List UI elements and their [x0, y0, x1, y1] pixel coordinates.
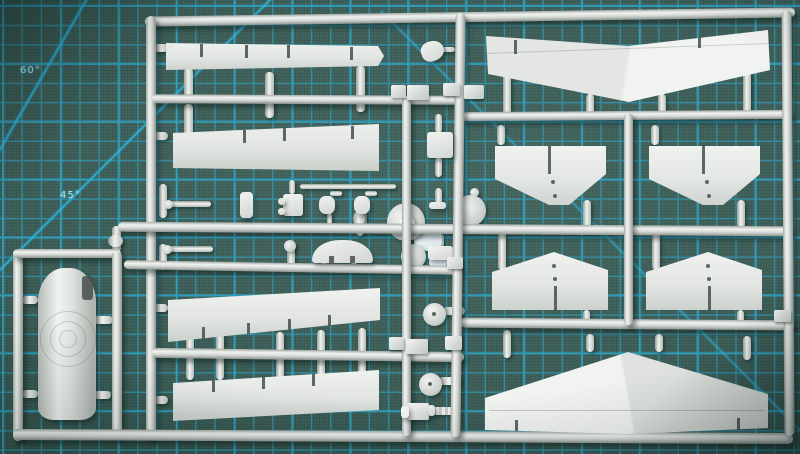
gear-leg-arm: [330, 191, 342, 196]
gear-leg-part: [319, 196, 335, 214]
gate-pad: [407, 85, 429, 100]
antenna-rod-part: [167, 201, 211, 207]
pin-cap: [428, 405, 435, 416]
gate-pad: [464, 85, 484, 99]
gate-pad: [443, 83, 460, 96]
wing-half-upper-starboard: [172, 114, 382, 174]
flap-slit: [212, 380, 215, 392]
canopy-foot-notch: [329, 256, 334, 263]
elevator-slit: [554, 286, 557, 310]
runner-box-top: [13, 249, 121, 258]
flap-slit: [200, 44, 203, 57]
canopy-foot-notch: [350, 256, 355, 263]
sprue-gate-pin: [435, 157, 442, 177]
sprue-gate-pin: [356, 66, 365, 112]
flap-slit: [351, 126, 354, 139]
antenna-rod-part: [167, 246, 213, 252]
small-block-part: [240, 192, 253, 218]
engine-stud: [278, 208, 285, 215]
runner-vertical-a: [402, 96, 411, 436]
locator-hole: [553, 194, 557, 198]
flap-slit: [514, 40, 517, 54]
locator-hole: [706, 264, 710, 268]
runner-top: [145, 7, 795, 26]
gate-pad: [447, 257, 463, 269]
elevator-slit: [548, 146, 551, 174]
sprue-gate-pin: [289, 180, 295, 194]
gate-pad: [391, 85, 406, 98]
pin-ball-top: [284, 240, 296, 252]
locator-hole: [705, 180, 709, 184]
elevator-slit: [708, 286, 711, 310]
wing-half-upper-port: [166, 38, 384, 74]
sprue-gate-bulge: [108, 235, 123, 247]
tailplane-part: [492, 248, 610, 316]
flap-slit: [262, 377, 265, 389]
tailplane-part: [646, 248, 764, 316]
sprue-gate-pin: [497, 125, 505, 145]
engine-block-part: [283, 194, 303, 216]
engine-stud: [278, 198, 285, 205]
flap-slit: [328, 315, 331, 327]
photo-model-kit-sprue-on-cutting-mat: 60° 45°: [0, 0, 800, 454]
sprue-frame: [0, 0, 800, 454]
sprue-gate-pin: [737, 200, 745, 228]
sprue-gate-pin: [94, 391, 111, 399]
sprue-gate-pin: [22, 390, 38, 398]
hatch-panel-part: [427, 132, 453, 158]
flat-cap-part: [429, 202, 446, 209]
runner-box-left: [13, 251, 23, 441]
locator-hole: [707, 194, 711, 198]
flap-slit: [247, 323, 250, 335]
locator-hole: [553, 277, 557, 281]
wing-panel-line: [489, 410, 765, 411]
runner-box-right: [112, 251, 122, 437]
rod-ball-end: [164, 200, 173, 209]
sprue-gate-pin: [651, 125, 659, 145]
cowl-ring: [59, 330, 77, 348]
runner-right: [782, 10, 795, 436]
runner-vertical-b: [624, 113, 633, 325]
flap-slit: [288, 319, 291, 331]
sprue-gate-pin: [586, 334, 594, 352]
flap-slit: [737, 418, 740, 431]
flap-slit: [698, 34, 701, 48]
spinner-part: [418, 38, 446, 65]
cowl-notch: [82, 276, 93, 300]
sprue-gate-pin: [154, 44, 168, 52]
flap-slit: [245, 45, 248, 58]
gate-pad: [445, 336, 462, 350]
sprue-gate-pin: [184, 104, 193, 136]
flap-slit: [243, 130, 246, 143]
canopy-part: [312, 240, 373, 263]
sprue-gate-pin: [743, 336, 751, 360]
sprue-gate-pin: [435, 114, 442, 133]
sprue-gate-pin: [154, 132, 168, 140]
sprue-gate-pin: [154, 304, 168, 312]
flap-slit: [202, 327, 205, 339]
sprue-gate-pin: [503, 330, 511, 358]
locator-hole: [707, 277, 711, 281]
sprue-gate-pin: [583, 200, 591, 228]
flap-slit: [287, 45, 290, 58]
locator-hole: [551, 180, 555, 184]
one-piece-lower-wing: [485, 348, 769, 434]
gear-leg-part: [354, 196, 370, 214]
flap-slit: [350, 47, 353, 60]
small-plate-part: [407, 403, 429, 420]
rod-ball-end: [163, 245, 172, 254]
branch-runner: [300, 184, 396, 189]
flap-slit: [283, 128, 286, 141]
gate-pad: [774, 310, 791, 322]
sprue-gate-pin: [154, 396, 168, 404]
sprue-gate-pin: [655, 334, 663, 352]
wing-panel-line: [486, 43, 770, 54]
gate-pad: [406, 339, 428, 354]
locator-hole: [552, 264, 556, 268]
wheel-hub-hole: [428, 382, 432, 386]
one-piece-upper-wing: [486, 20, 770, 104]
plate-cap: [401, 406, 409, 418]
wing-half-lower-port: [167, 285, 382, 345]
gear-leg-arm: [365, 191, 377, 196]
gate-pad: [389, 337, 404, 350]
sprue-gate-pin: [22, 296, 38, 304]
flap-slit: [312, 374, 315, 386]
wheel-hub-hole: [432, 312, 436, 316]
flap-slit: [515, 420, 518, 431]
elevator-slit: [702, 146, 705, 174]
engine-cowling-part: [38, 268, 96, 420]
sprue-gate-pin: [94, 316, 113, 324]
